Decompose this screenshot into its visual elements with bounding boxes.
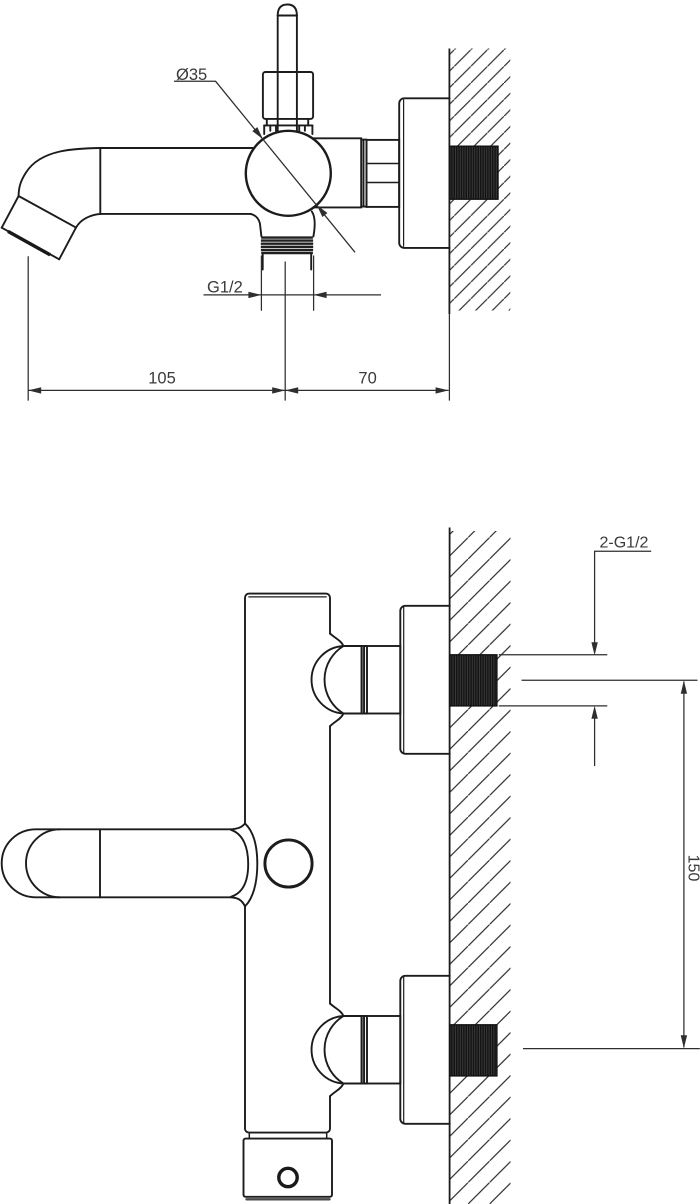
svg-text:2-G1/2: 2-G1/2: [600, 534, 649, 551]
svg-text:Ø35: Ø35: [176, 66, 207, 84]
svg-text:G1/2: G1/2: [207, 279, 243, 297]
svg-text:150: 150: [685, 855, 700, 882]
svg-text:105: 105: [148, 370, 176, 388]
svg-text:70: 70: [358, 370, 376, 388]
